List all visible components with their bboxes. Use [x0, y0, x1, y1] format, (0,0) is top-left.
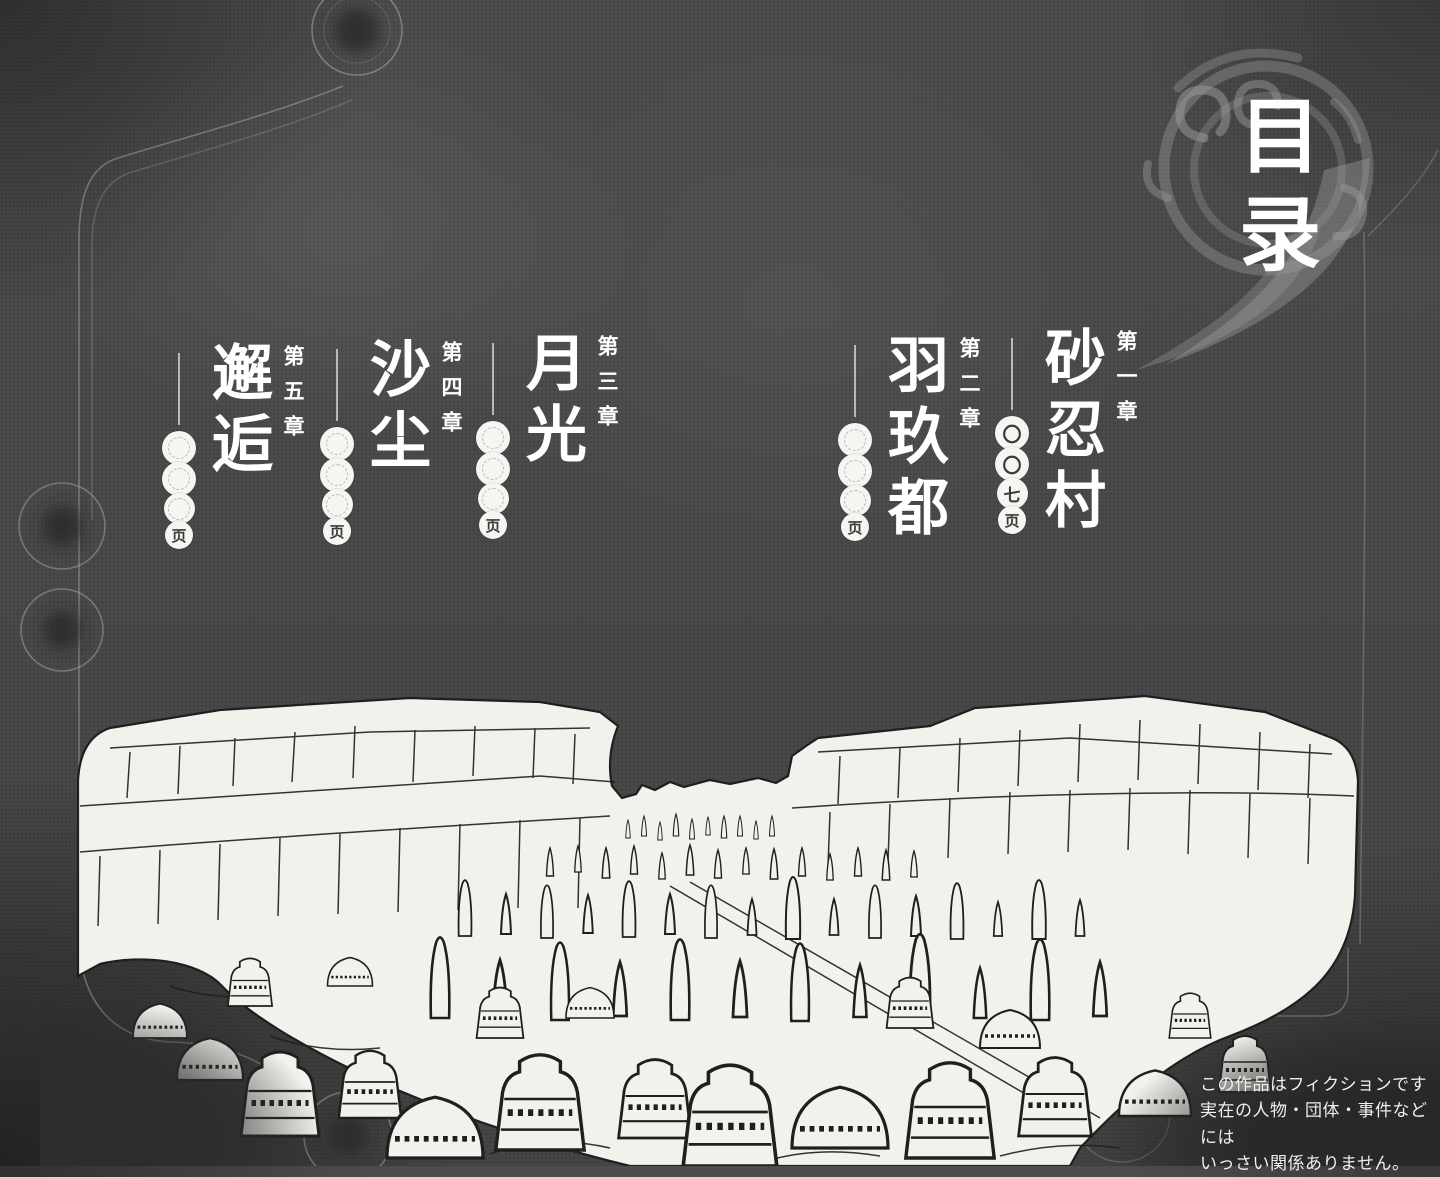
chapter-title: 沙尘 — [362, 337, 426, 479]
page-digit-circle — [162, 462, 196, 496]
page-digit-circle: 〇 — [995, 416, 1029, 450]
toc-emblem: 目 录 — [1108, 18, 1408, 378]
page-unit-circle: 页 — [998, 506, 1026, 534]
page-unit-circle: 页 — [165, 521, 193, 549]
chapter-number: 第三章 — [597, 335, 618, 440]
page-digit-circle — [476, 421, 510, 455]
chapter-number: 第一章 — [1116, 330, 1137, 435]
page-digit-circle — [838, 454, 872, 488]
chapter-title: 羽玖都 — [880, 333, 944, 546]
canyon-village-illustration — [70, 686, 1365, 1166]
page-unit-circle: 页 — [841, 513, 869, 541]
page-digit-circle — [320, 458, 354, 492]
toc-entry-chapter-5: 第五章 邂逅 页 — [160, 341, 310, 591]
page-number-column: 页 — [160, 353, 198, 549]
page-digit-circle — [840, 485, 871, 516]
disclaimer-line: 実在の人物・団体・事件などには — [1200, 1098, 1428, 1151]
page-digit-circle — [320, 427, 354, 461]
page-digit-circle — [162, 431, 196, 465]
page-number-column: 页 — [836, 345, 874, 541]
chapter-number: 第四章 — [441, 341, 462, 446]
title-char-2: 录 — [1220, 186, 1340, 284]
divider-line — [178, 353, 180, 425]
manga-toc-page: { "emblem": { "chars": ["目", "录"] }, "to… — [0, 0, 1440, 1166]
chapter-title: 邂逅 — [204, 341, 268, 483]
title-char-1: 目 — [1220, 88, 1340, 186]
divider-line — [492, 343, 494, 415]
divider-line — [1011, 338, 1013, 410]
page-digit-circle — [476, 452, 510, 486]
page-digit-circle — [838, 423, 872, 457]
disclaimer-line: いっさい関係ありません。 — [1200, 1151, 1428, 1177]
page-digit-circle — [478, 483, 509, 514]
disclaimer-line: この作品はフィクションです — [1200, 1072, 1428, 1098]
fiction-disclaimer: この作品はフィクションです 実在の人物・団体・事件などには いっさい関係ありませ… — [1200, 1072, 1428, 1177]
page-digit-circle — [164, 493, 195, 524]
page-title: 目 录 — [1220, 88, 1340, 285]
chapter-number: 第五章 — [283, 345, 304, 450]
page-digit-circle: 〇 — [995, 447, 1029, 481]
page-unit-circle: 页 — [323, 517, 351, 545]
page-number-column: 〇 〇 七 页 — [993, 338, 1031, 534]
divider-line — [336, 349, 338, 421]
toc-entry-chapter-1: 第一章 砂忍村 〇 〇 七 页 — [993, 326, 1143, 576]
page-number-column: 页 — [474, 343, 512, 539]
page-number-column: 页 — [318, 349, 356, 545]
toc-entry-chapter-3: 第三章 月光 页 — [474, 331, 624, 581]
toc-entry-chapter-2: 第二章 羽玖都 页 — [836, 333, 986, 583]
chapter-title: 砂忍村 — [1037, 326, 1101, 539]
page-unit-circle: 页 — [479, 511, 507, 539]
page-digit-circle: 七 — [997, 478, 1028, 509]
divider-line — [854, 345, 856, 417]
toc-entry-chapter-4: 第四章 沙尘 页 — [318, 337, 468, 587]
page-digit-circle — [322, 489, 353, 520]
chapter-title: 月光 — [518, 331, 582, 473]
chapter-number: 第二章 — [959, 337, 980, 442]
